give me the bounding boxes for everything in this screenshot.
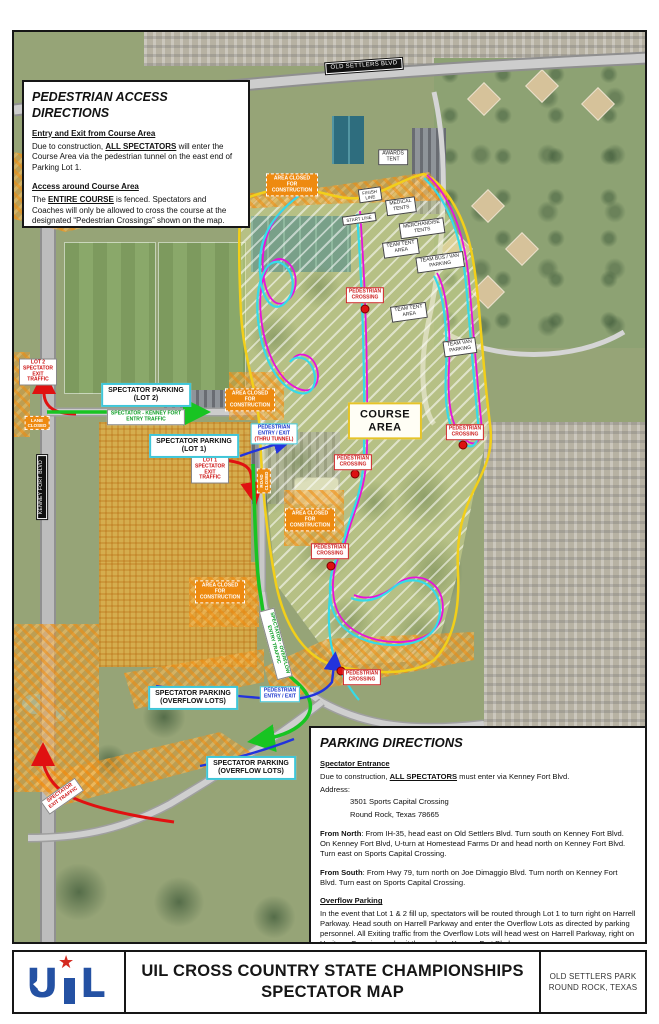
from-north-label: From North <box>320 829 361 838</box>
spectator-parking-overflow-label-1: SPECTATOR PARKING (OVERFLOW LOTS) <box>148 686 238 710</box>
pedestrian-box-title: PEDESTRIAN ACCESS DIRECTIONS <box>32 89 240 122</box>
pedestrian-entry-tunnel-label: PEDESTRIAN ENTRY / EXIT(THRU TUNNEL) <box>251 423 298 444</box>
entry-exit-pre: Due to construction, <box>32 142 105 151</box>
pedestrian-crossing-3: PEDESTRIAN CROSSING <box>334 454 372 470</box>
access-paragraph: The ENTIRE COURSE is fenced. Spectators … <box>32 195 240 226</box>
address-line-1: 3501 Sports Capital Crossing <box>320 797 636 807</box>
spectator-parking-lot1-label: SPECTATOR PARKING (LOT 1) <box>149 434 239 458</box>
address-label: Address: <box>320 785 636 795</box>
spectator-parking-overflow-label-2: SPECTATOR PARKING (OVERFLOW LOTS) <box>206 756 296 780</box>
pedestrian-crossing-4: PEDESTRIAN CROSSING <box>311 543 349 559</box>
pedestrian-crossing-1: PEDESTRIAN CROSSING <box>346 287 384 303</box>
entry-exit-paragraph: Due to construction, ALL SPECTATORS will… <box>32 142 240 173</box>
star-icon: ★ <box>58 952 74 973</box>
course-area-label: COURSE AREA <box>348 402 422 439</box>
logo-letter-l: L <box>80 961 106 1007</box>
access-pre: The <box>32 195 48 204</box>
all-spectators-emphasis: ALL SPECTATORS <box>105 142 176 151</box>
area-closed-label-3: AREA CLOSED FOR CONSTRUCTION <box>285 508 335 531</box>
parking-box-title: PARKING DIRECTIONS <box>320 735 636 752</box>
thru-tunnel-text: (THRU TUNNEL) <box>255 437 294 443</box>
banner-title-cell: UIL CROSS COUNTRY STATE CHAMPIONSHIPS SP… <box>126 952 541 1012</box>
from-south-label: From South <box>320 868 363 877</box>
title-banner: U ★ L UIL CROSS COUNTRY STATE CHAMPIONSH… <box>12 950 647 1014</box>
from-south-paragraph: From South: From Hwy 79, turn north on J… <box>320 868 636 888</box>
spectator-map: OLD SETTLERS BLVD KENNEY FORT BLVD AREA … <box>12 30 647 944</box>
access-heading: Access around Course Area <box>32 182 139 191</box>
entire-course-emphasis: ENTIRE COURSE <box>48 195 114 204</box>
entrance-post: must enter via Kenney Fort Blvd. <box>457 772 569 781</box>
uil-logo: U ★ L <box>24 959 114 1005</box>
spectator-map-page: { "banner": { "logo_u": "U", "logo_star"… <box>0 0 659 1024</box>
area-closed-label-2: AREA CLOSED FOR CONSTRUCTION <box>225 388 275 411</box>
lane-closed-label: LANE CLOSED <box>25 416 50 430</box>
banner-location-cell: OLD SETTLERS PARK ROUND ROCK, TEXAS <box>541 952 645 1012</box>
from-north-paragraph: From North: From IH-35, head east on Old… <box>320 829 636 859</box>
spectator-entrance-paragraph: Due to construction, ALL SPECTATORS must… <box>320 772 636 782</box>
pedestrian-entry-text: PEDESTRIAN ENTRY / EXIT <box>258 424 290 436</box>
pedestrian-entry-overflow-label: PEDESTRIAN ENTRY / EXIT <box>260 686 300 702</box>
from-north-text: : From IH-35, head east on Old Settlers … <box>320 829 625 858</box>
spectator-parking-lot2-label: SPECTATOR PARKING (LOT 2) <box>101 383 191 407</box>
entrance-pre: Due to construction, <box>320 772 390 781</box>
location-line1: OLD SETTLERS PARK <box>550 971 637 982</box>
area-closed-label-4: AREA CLOSED FOR CONSTRUCTION <box>195 580 245 603</box>
banner-title-line2: SPECTATOR MAP <box>261 982 404 1003</box>
address-line-2: Round Rock, Texas 78665 <box>320 810 636 820</box>
road-label-kenney-fort: KENNEY FORT BLVD <box>37 455 47 519</box>
uil-logo-cell: U ★ L <box>14 952 126 1012</box>
lot1-exit-label: LOT 1 SPECTATOR EXIT TRAFFIC <box>191 457 229 484</box>
from-south-text: : From Hwy 79, turn north on Joe Dimaggi… <box>320 868 618 887</box>
area-closed-label-1: AREA CLOSED FOR CONSTRUCTION <box>266 173 318 196</box>
parking-directions-box: PARKING DIRECTIONS Spectator Entrance Du… <box>309 726 647 944</box>
overflow-parking-heading: Overflow Parking <box>320 896 382 905</box>
all-spectators-emphasis-2: ALL SPECTATORS <box>390 772 457 781</box>
banner-title-line1: UIL CROSS COUNTRY STATE CHAMPIONSHIPS <box>141 961 523 982</box>
spectator-entrance-heading: Spectator Entrance <box>320 759 390 768</box>
awards-tent-label: AWARDS TENT <box>378 149 408 165</box>
location-line2: ROUND ROCK, TEXAS <box>549 982 638 993</box>
logo-letter-i-bar <box>64 978 75 1004</box>
pedestrian-crossing-5: PEDESTRIAN CROSSING <box>343 669 381 685</box>
lot2-exit-label: LOT 2 SPECTATOR EXIT TRAFFIC <box>19 359 57 386</box>
pedestrian-crossing-2: PEDESTRIAN CROSSING <box>446 424 484 440</box>
pedestrian-access-directions-box: PEDESTRIAN ACCESS DIRECTIONS Entry and E… <box>22 80 250 228</box>
entry-exit-heading: Entry and Exit from Course Area <box>32 129 155 138</box>
kenney-entry-label: SPECTATOR - KENNEY FORT ENTRY TRAFFIC <box>107 409 185 425</box>
road-closed-label: ROAD CLOSED <box>257 469 271 494</box>
overflow-parking-paragraph: In the event that Lot 1 & 2 fill up, spe… <box>320 909 636 944</box>
